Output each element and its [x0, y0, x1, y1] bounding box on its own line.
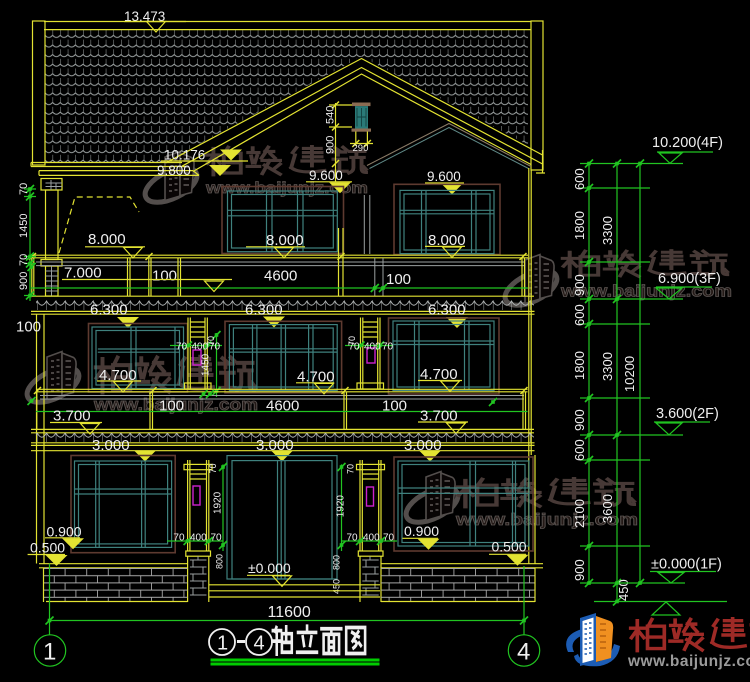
svg-text:9.600: 9.600: [427, 169, 461, 184]
svg-text:1800: 1800: [572, 351, 587, 380]
svg-text:600: 600: [572, 168, 587, 190]
svg-text:800: 800: [215, 554, 225, 569]
svg-text:3.600(2F): 3.600(2F): [656, 406, 719, 422]
svg-text:8.000: 8.000: [88, 231, 126, 248]
svg-text:10.200(4F): 10.200(4F): [652, 135, 723, 151]
svg-text:900: 900: [325, 136, 337, 154]
svg-text:0.900: 0.900: [47, 524, 82, 540]
svg-text:70: 70: [176, 342, 188, 353]
svg-text:100: 100: [386, 271, 411, 288]
svg-text:70: 70: [211, 532, 223, 543]
svg-text:6.900(3F): 6.900(3F): [658, 271, 721, 287]
svg-text:1: 1: [43, 639, 56, 666]
svg-text:70: 70: [206, 336, 216, 346]
svg-text:±0.000(1F): ±0.000(1F): [651, 557, 722, 573]
svg-text:1800: 1800: [572, 211, 587, 240]
svg-text:70: 70: [382, 342, 394, 353]
svg-text:290: 290: [353, 143, 369, 154]
svg-text:900: 900: [572, 409, 587, 431]
svg-text:450: 450: [332, 579, 342, 594]
svg-text:0.900: 0.900: [404, 523, 439, 539]
svg-text:9.600: 9.600: [309, 168, 343, 183]
svg-text:900: 900: [572, 559, 587, 581]
svg-text:6.300: 6.300: [428, 302, 466, 319]
svg-text:70: 70: [347, 532, 359, 543]
svg-text:600: 600: [572, 304, 587, 326]
svg-text:100: 100: [152, 268, 177, 285]
svg-text:3.000: 3.000: [92, 437, 130, 454]
svg-text:±0.000: ±0.000: [248, 560, 291, 576]
svg-text:100: 100: [159, 398, 184, 415]
svg-text:0.500: 0.500: [492, 539, 527, 555]
svg-text:4600: 4600: [266, 398, 299, 415]
svg-text:70: 70: [347, 336, 357, 346]
svg-text:70: 70: [346, 464, 356, 474]
svg-text:900: 900: [572, 274, 587, 296]
svg-text:4600: 4600: [264, 268, 297, 285]
svg-text:0.500: 0.500: [30, 540, 65, 556]
svg-text:70: 70: [173, 532, 185, 543]
svg-text:3300: 3300: [600, 216, 615, 245]
svg-text:6.300: 6.300: [90, 302, 128, 319]
svg-text:100: 100: [16, 319, 41, 336]
svg-text:400: 400: [190, 532, 207, 543]
svg-text:4: 4: [517, 639, 530, 666]
svg-text:100: 100: [382, 398, 407, 415]
svg-text:540: 540: [325, 106, 337, 124]
svg-text:1450: 1450: [18, 214, 30, 238]
svg-text:6.300: 6.300: [245, 302, 283, 319]
svg-text:70: 70: [18, 254, 30, 266]
svg-text:70: 70: [208, 463, 218, 473]
svg-text:900: 900: [18, 272, 30, 290]
svg-text:10200: 10200: [622, 356, 637, 392]
svg-text:1450: 1450: [201, 353, 212, 376]
svg-text:1920: 1920: [336, 495, 347, 518]
svg-text:400: 400: [364, 342, 381, 353]
svg-text:11600: 11600: [268, 604, 311, 621]
svg-text:www.baijunjz.com: www.baijunjz.com: [627, 653, 750, 670]
svg-text:9.800: 9.800: [157, 163, 191, 178]
svg-text:800: 800: [332, 555, 342, 570]
svg-text:3300: 3300: [600, 352, 615, 381]
svg-text:3600: 3600: [600, 494, 615, 523]
svg-text:4: 4: [254, 633, 265, 655]
svg-text:1920: 1920: [213, 491, 224, 514]
svg-text:400: 400: [363, 532, 380, 543]
svg-text:600: 600: [572, 439, 587, 461]
svg-text:10.176: 10.176: [164, 148, 205, 163]
svg-text:70: 70: [383, 532, 395, 543]
svg-text:1: 1: [217, 633, 228, 655]
svg-text:70: 70: [18, 183, 30, 195]
svg-text:2100: 2100: [572, 499, 587, 528]
